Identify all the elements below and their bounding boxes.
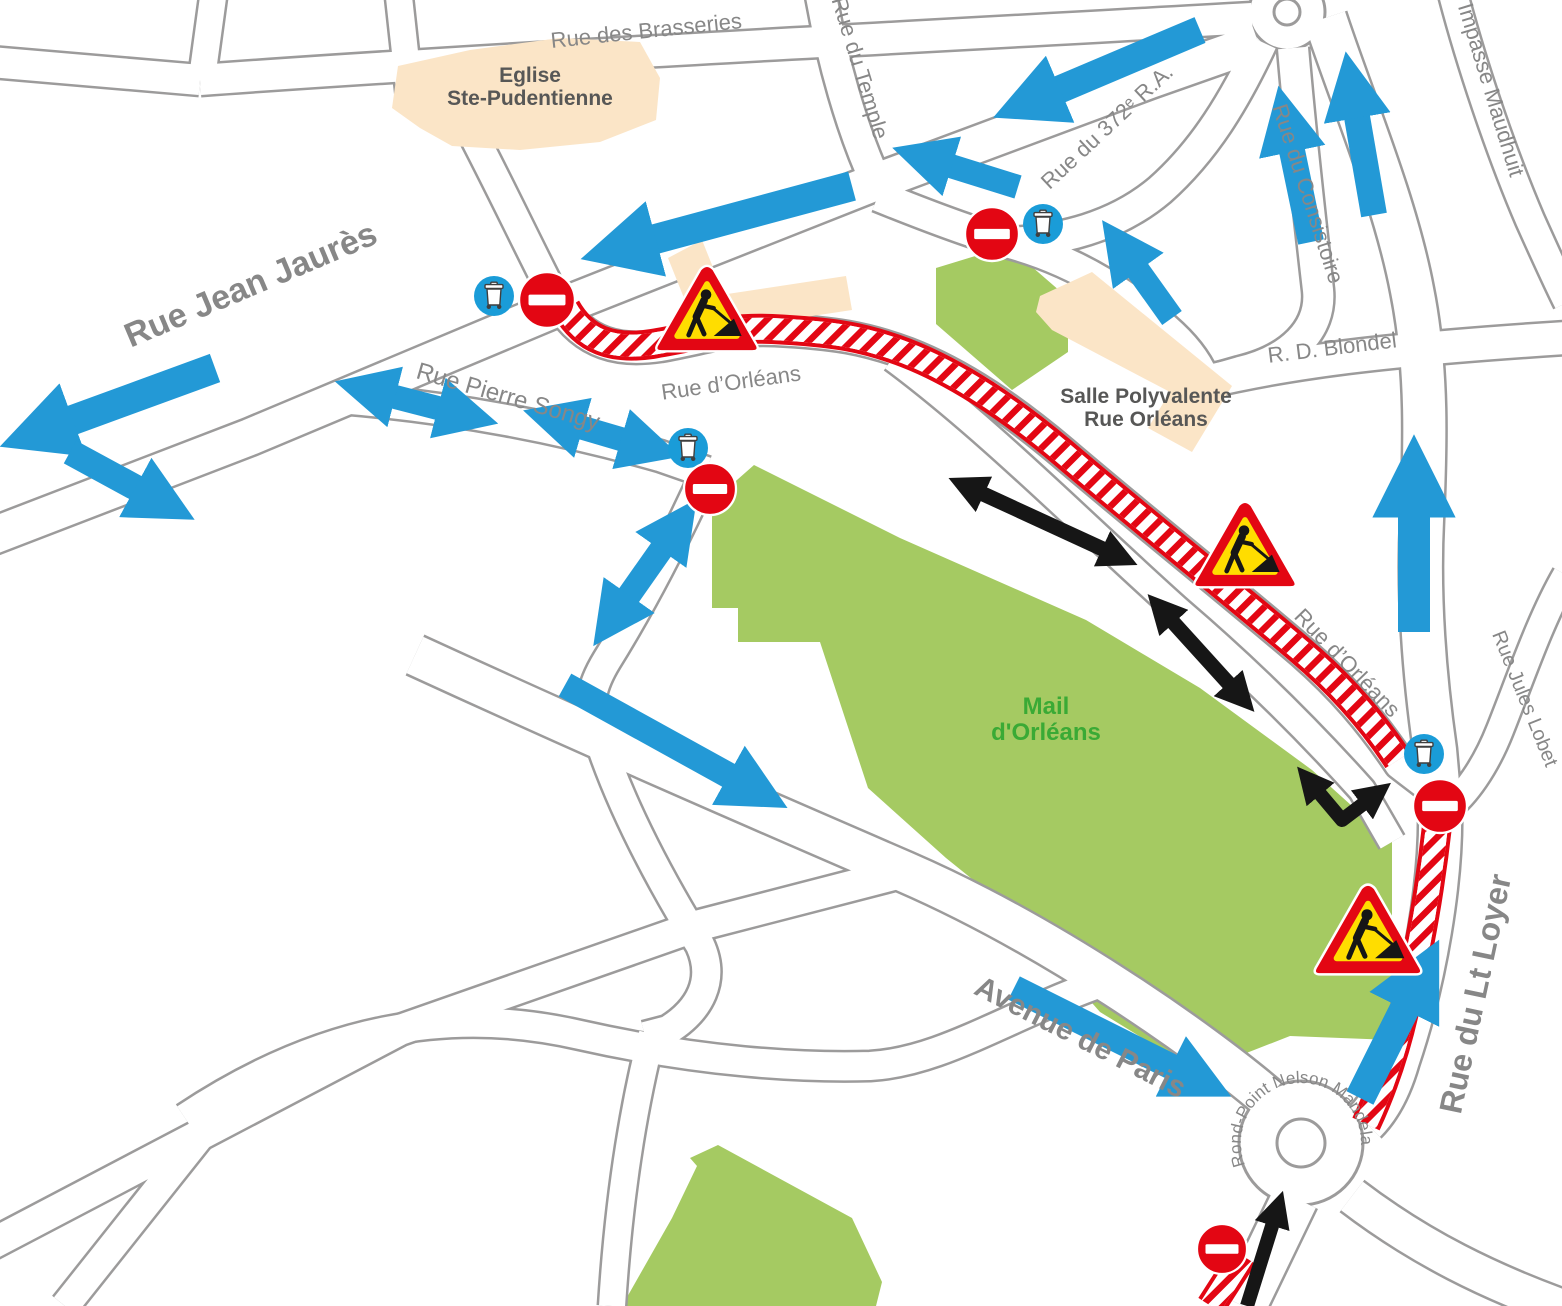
no-entry-sign-icon [1413, 779, 1467, 833]
eglise-ste-pudentienne-label: Ste-Pudentienne [447, 87, 613, 110]
no-entry-sign-icon [684, 463, 736, 515]
no-entry-sign-icon [519, 272, 575, 328]
eglise-ste-pudentienne-label: Eglise [499, 64, 561, 87]
top-roundabout-island [1274, 0, 1300, 25]
street-top-left-street [0, 62, 200, 80]
mail-dorleans-label: Mail [1023, 693, 1070, 720]
no-entry-sign-icon [1197, 1224, 1247, 1274]
rond-point-nelson-mandela-island [1277, 1119, 1325, 1167]
salle-polyvalente-label: Salle Polyvalente [1060, 385, 1232, 408]
mail-dorleans-label: d'Orléans [991, 719, 1101, 746]
no-entry-sign-icon [965, 207, 1019, 261]
roadworks-deviation-map: Rue Jean JaurèsRue des BrasseriesRue du … [0, 0, 1562, 1306]
bin-collection-icon [668, 428, 708, 468]
street-top-left-stub [202, 0, 214, 78]
bin-collection-icon [1404, 734, 1444, 774]
salle-polyvalente-label: Rue Orléans [1084, 408, 1208, 431]
bin-collection-icon [1023, 204, 1063, 244]
bin-collection-icon [474, 276, 514, 316]
deviation-map-page: Rue Jean JaurèsRue des BrasseriesRue du … [0, 0, 1562, 1306]
